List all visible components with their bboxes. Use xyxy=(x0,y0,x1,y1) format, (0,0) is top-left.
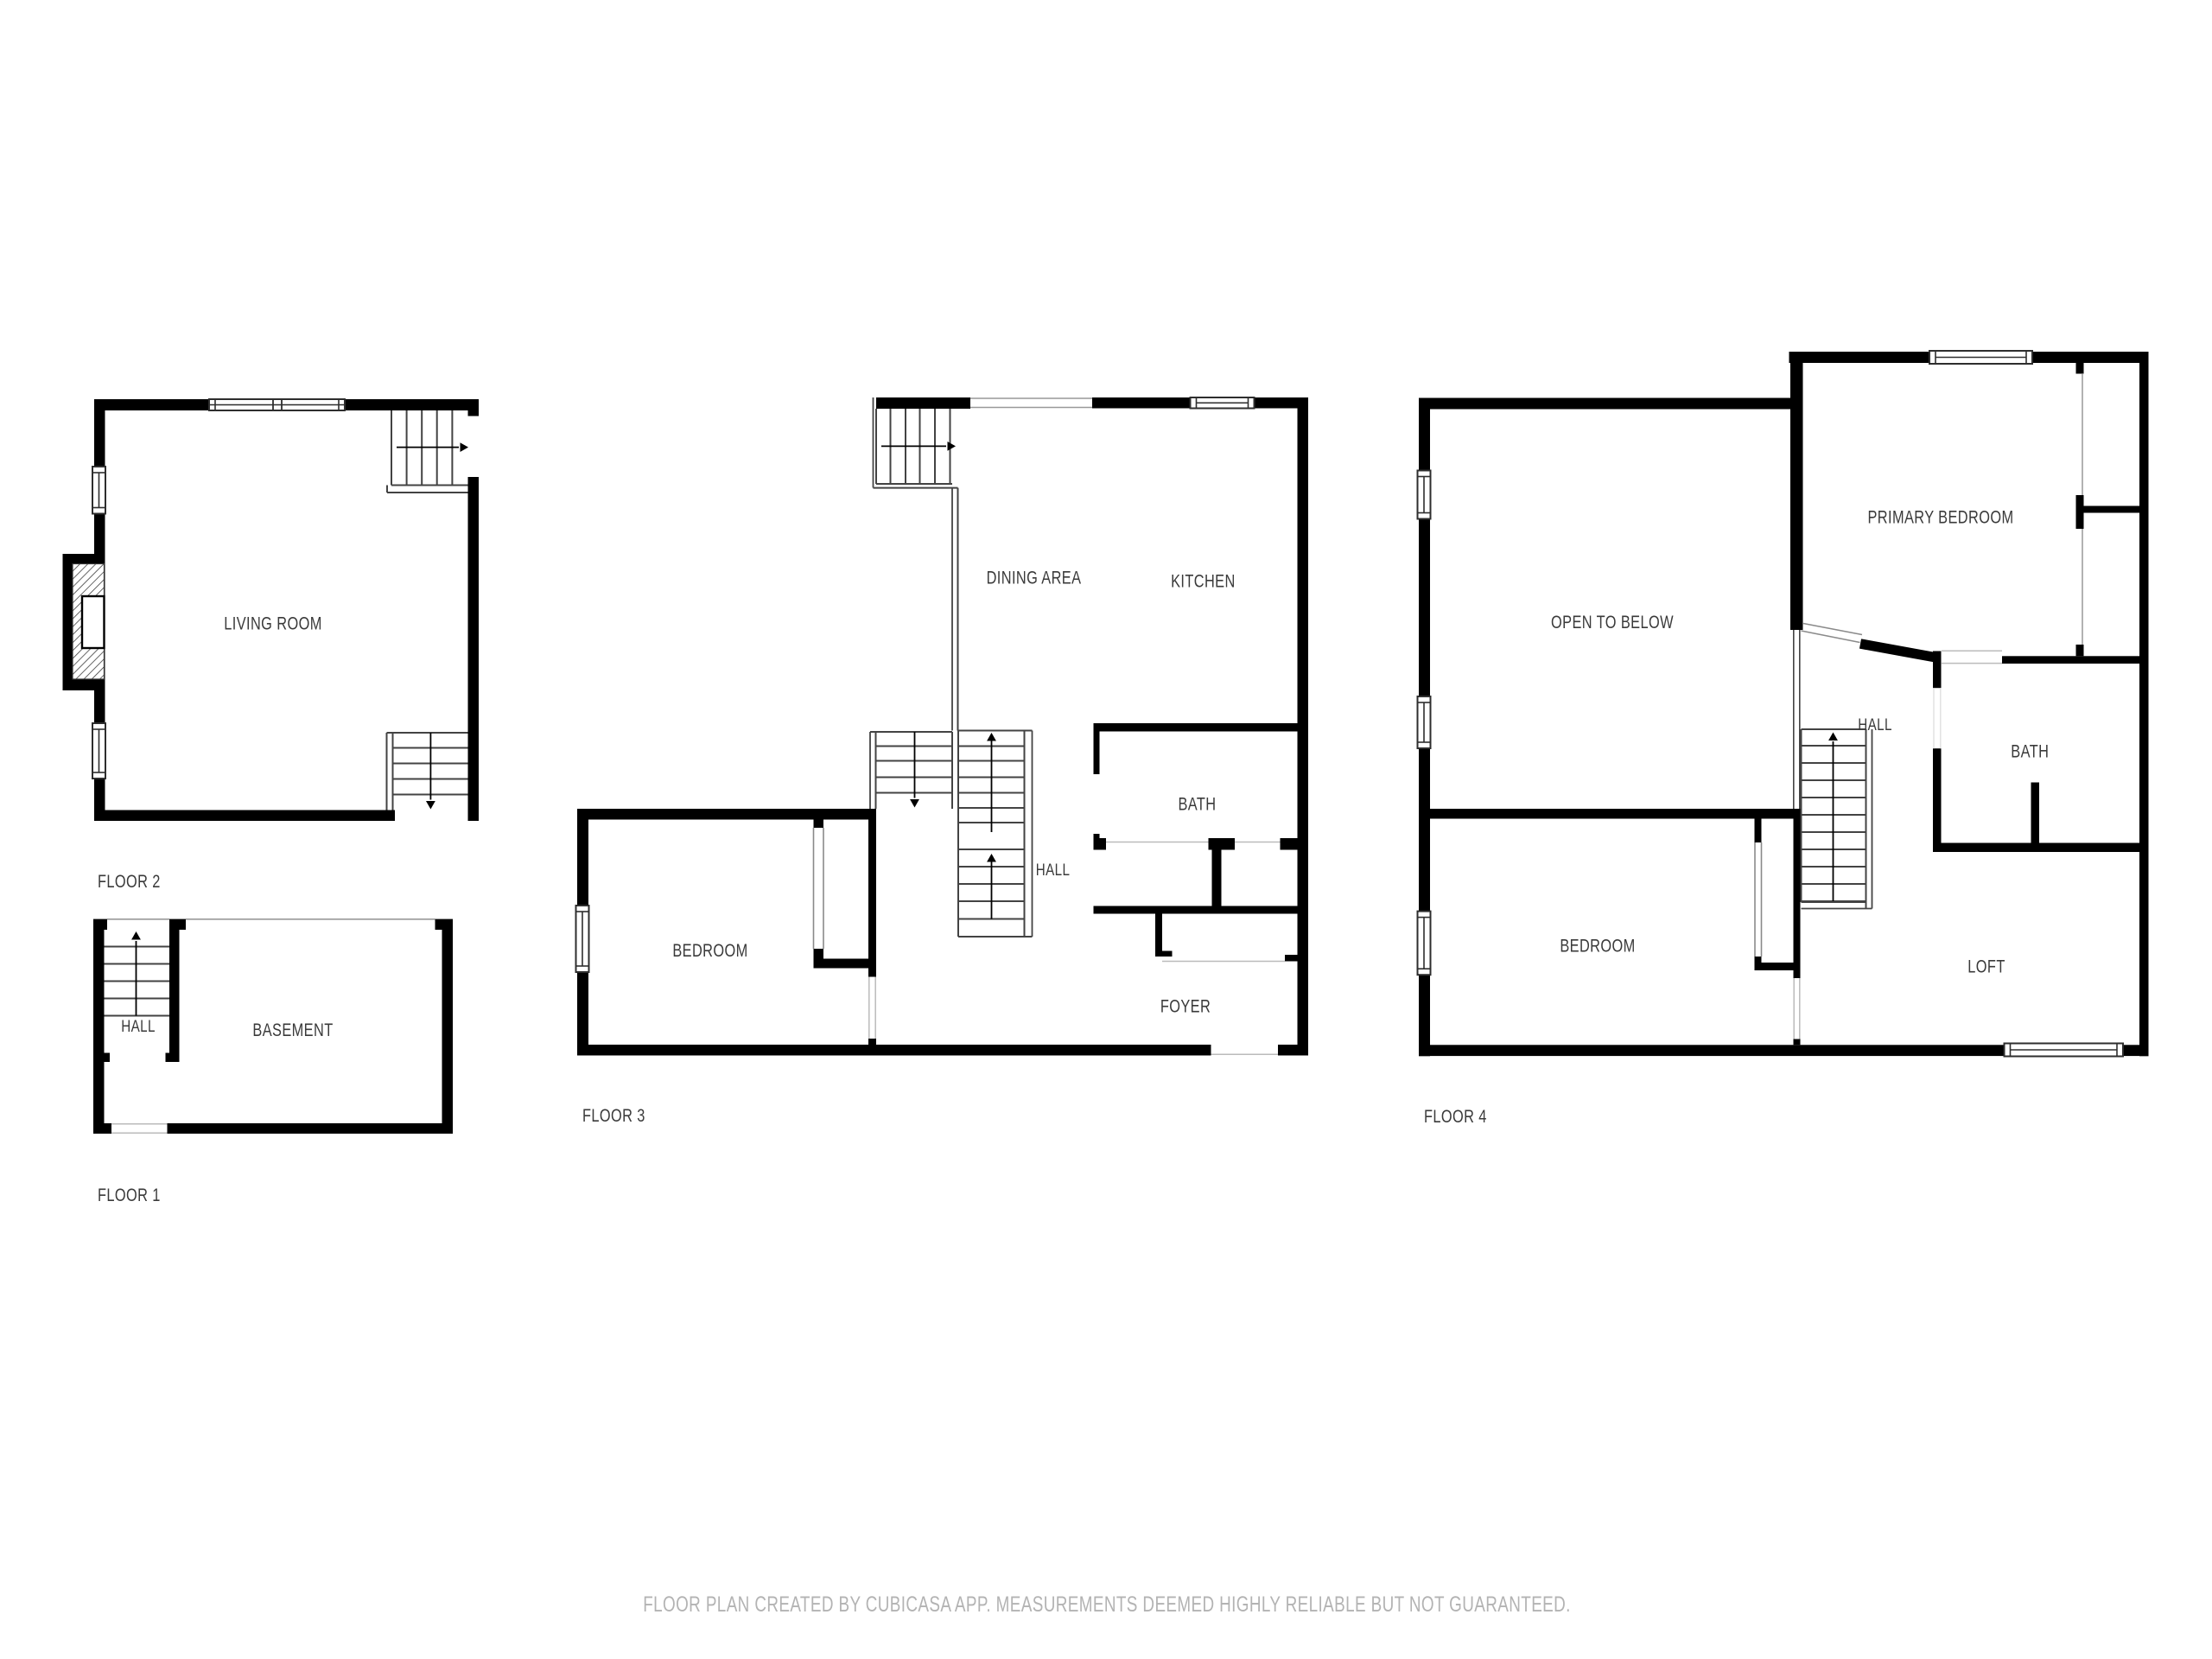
svg-text:HALL: HALL xyxy=(1858,715,1892,734)
svg-text:BATH: BATH xyxy=(2011,741,2049,761)
svg-text:BASEMENT: BASEMENT xyxy=(252,1020,333,1039)
svg-text:FLOOR 3: FLOOR 3 xyxy=(582,1105,645,1125)
svg-text:FLOOR 4: FLOOR 4 xyxy=(1424,1106,1487,1126)
svg-text:FOYER: FOYER xyxy=(1160,996,1211,1016)
svg-text:KITCHEN: KITCHEN xyxy=(1171,571,1236,591)
svg-text:FLOOR 2: FLOOR 2 xyxy=(98,871,161,891)
svg-text:BATH: BATH xyxy=(1178,794,1216,814)
svg-text:PRIMARY BEDROOM: PRIMARY BEDROOM xyxy=(1867,507,2013,527)
svg-text:LIVING ROOM: LIVING ROOM xyxy=(224,613,321,633)
svg-text:FLOOR 1: FLOOR 1 xyxy=(98,1185,161,1205)
svg-text:OPEN TO BELOW: OPEN TO BELOW xyxy=(1551,612,1674,632)
svg-text:LOFT: LOFT xyxy=(1967,957,2005,976)
svg-text:BEDROOM: BEDROOM xyxy=(1560,936,1635,956)
svg-text:BEDROOM: BEDROOM xyxy=(672,940,747,960)
svg-text:DINING AREA: DINING AREA xyxy=(987,568,1082,588)
svg-text:HALL: HALL xyxy=(1036,860,1071,879)
svg-text:HALL: HALL xyxy=(121,1016,156,1035)
svg-text:FLOOR PLAN CREATED BY CUBICASA: FLOOR PLAN CREATED BY CUBICASA APP. MEAS… xyxy=(643,1592,1571,1616)
